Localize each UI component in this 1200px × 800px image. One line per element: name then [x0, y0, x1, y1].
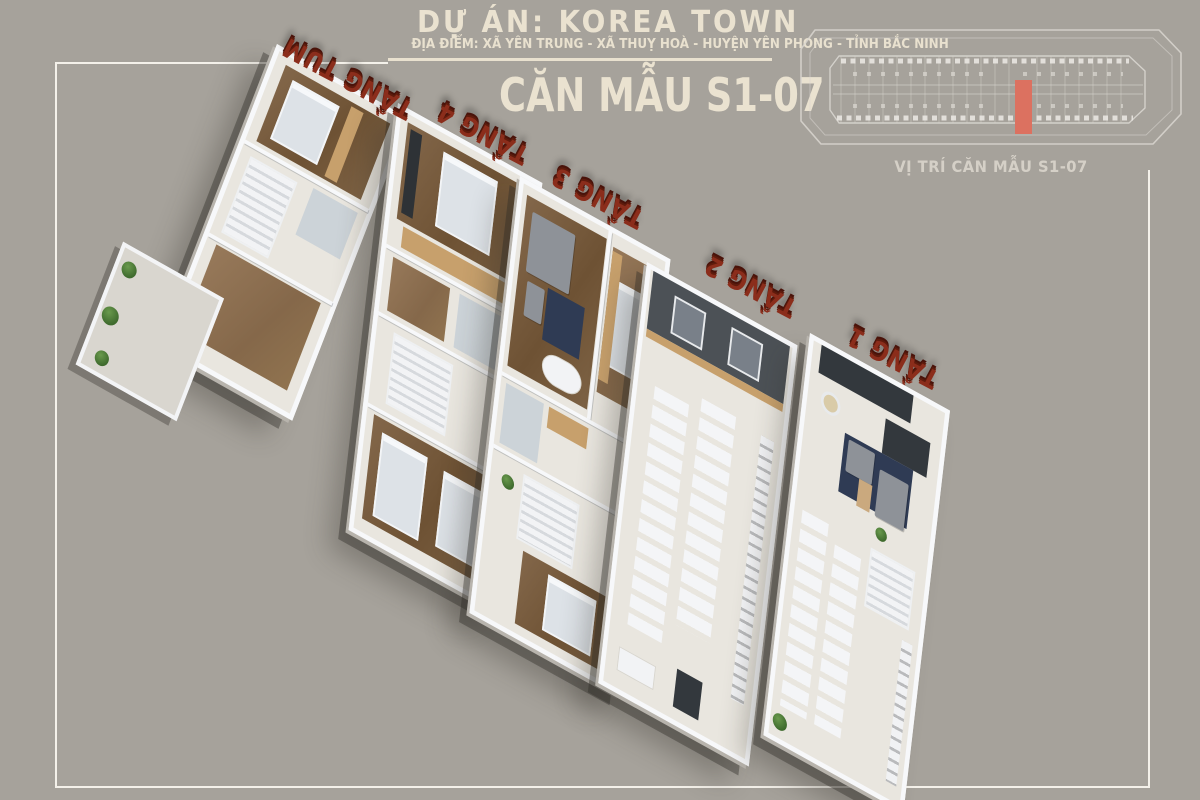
staircase	[864, 547, 915, 631]
plant	[120, 258, 140, 281]
kitchen-counter	[547, 407, 589, 450]
plant	[99, 304, 121, 330]
site-unit-block	[830, 56, 1145, 123]
frame-right	[1148, 170, 1150, 788]
floorplan-tang-1	[763, 333, 950, 800]
plant	[772, 711, 788, 735]
site-corridor-lines	[833, 85, 1143, 94]
project-location: ĐỊA ĐIỂM: XÃ YÊN TRUNG - XÃ THUỴ HOÀ - H…	[411, 37, 764, 52]
staircase	[221, 156, 297, 259]
cabinet	[673, 669, 703, 720]
site-plan-map	[793, 22, 1189, 154]
header-underline	[388, 58, 772, 61]
site-map-caption: VỊ TRÍ CĂN MẪU S1-07	[811, 157, 1172, 176]
site-unit-dividers	[841, 56, 1121, 123]
unit-title: CĂN MẪU S1-07	[499, 68, 775, 122]
highlighted-unit	[1015, 80, 1032, 134]
site-outer-boundary	[801, 30, 1181, 144]
office-desk	[616, 646, 656, 691]
site-detail-squares	[853, 74, 1123, 106]
frame-bottom	[55, 786, 1150, 788]
project-title: DỰ ÁN: KOREA TOWN	[417, 5, 761, 40]
plant	[875, 525, 888, 544]
roof-terrace	[76, 241, 225, 421]
frame-left	[55, 62, 57, 788]
plant	[93, 347, 111, 368]
round-table	[820, 387, 842, 420]
side-tables	[731, 436, 774, 706]
plant	[501, 471, 515, 492]
wall-shelving	[886, 640, 913, 787]
